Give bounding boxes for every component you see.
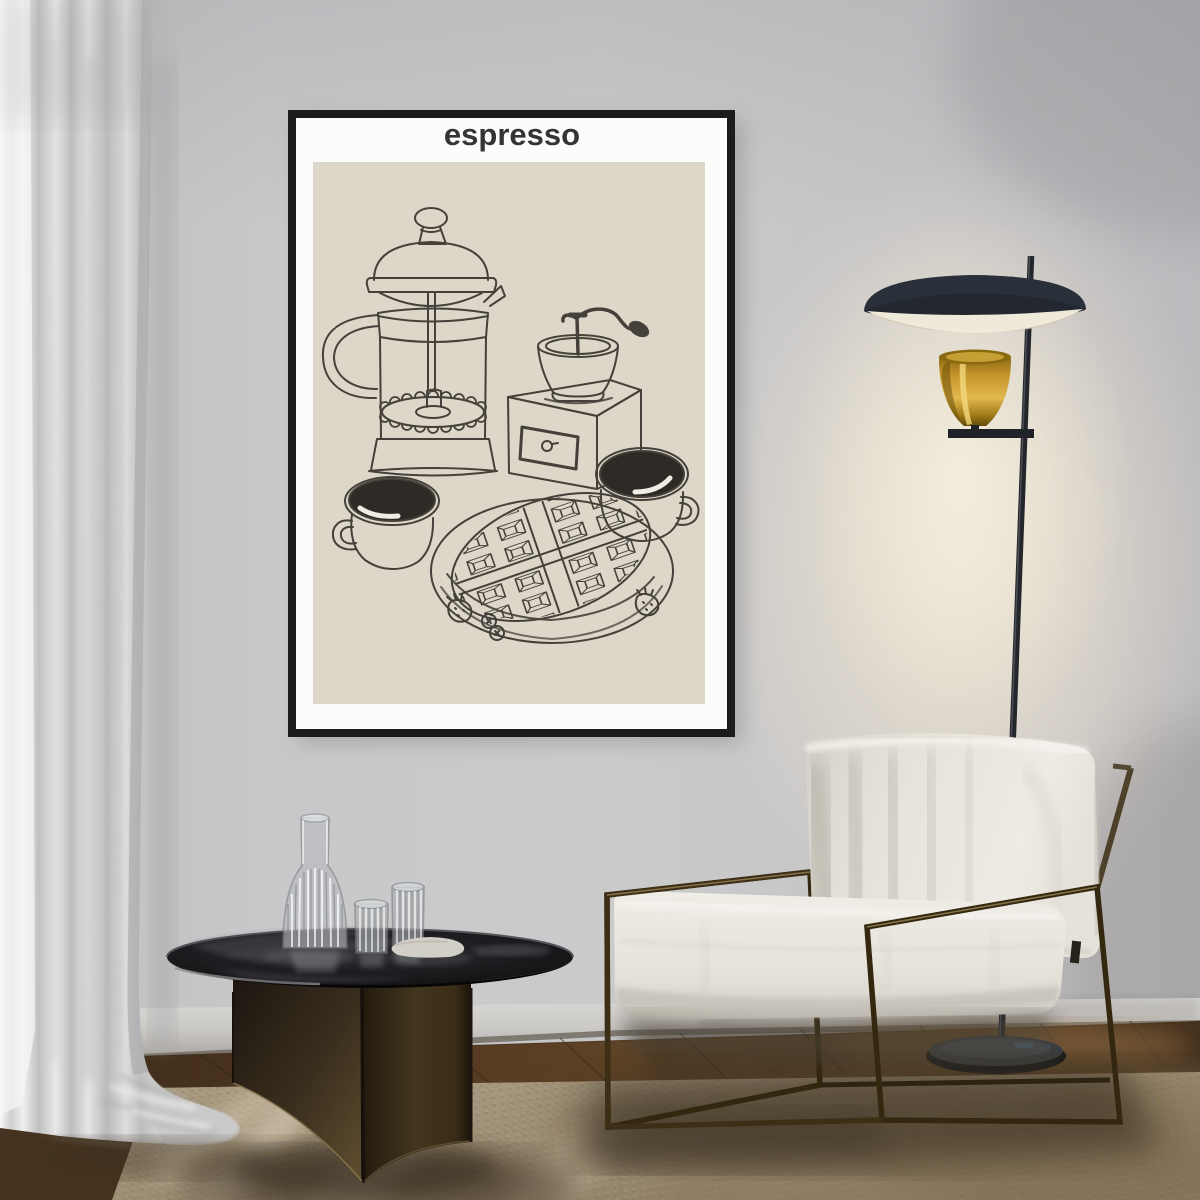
svg-text:espresso: espresso bbox=[444, 117, 580, 152]
